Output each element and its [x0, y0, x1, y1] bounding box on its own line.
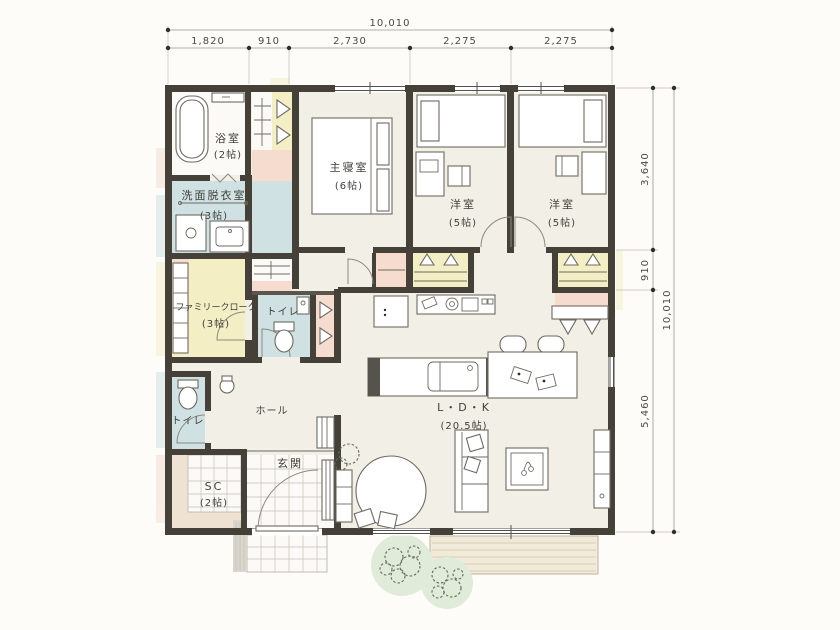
sliding-window-south-1	[373, 529, 430, 536]
dimensions-right: 3,640 910 5,460 10,010	[616, 86, 680, 534]
dining-table	[488, 352, 577, 398]
dim-right-seg-2: 910	[640, 259, 651, 281]
shoe-closet-size: (2帖)	[200, 496, 228, 509]
entrance-fixtures	[322, 460, 334, 520]
desk	[582, 152, 606, 194]
bedroom-center-size: (5帖)	[449, 216, 477, 229]
shoe-cabinet	[322, 460, 334, 520]
toilet-west-label: トイレ	[172, 416, 205, 427]
toilet-west-fixtures	[178, 380, 198, 409]
dim-right-seg-1: 3,640	[640, 152, 651, 186]
washroom-label: 洗面脱衣室	[182, 188, 247, 202]
dimensions-top: 10,010 1,820 910 2,730 2,275 2,275	[166, 18, 614, 84]
walkin-closet-floor	[272, 92, 292, 150]
dim-top-seg-3: 2,730	[333, 36, 367, 47]
sofa-pillow	[466, 434, 483, 451]
master-bedroom-size: (6帖)	[335, 179, 363, 192]
tv-board	[594, 430, 610, 508]
ldk-label: L・D・K	[437, 401, 491, 414]
pillow	[377, 169, 389, 211]
ldk-size: (20.5帖)	[440, 419, 487, 432]
bath-size: (2帖)	[214, 148, 242, 161]
back-counter-stove	[417, 295, 495, 314]
floor-plan-page: 浴室 (2帖) 洗面脱衣室 (3帖) ファミリークローク (3帖) トイレ トイ…	[0, 0, 840, 630]
bedroom-center-label: 洋室	[450, 197, 476, 211]
bedroom-east-size: (5帖)	[548, 216, 576, 229]
pillow	[421, 101, 439, 141]
dining-chair	[500, 336, 526, 353]
chair	[448, 166, 470, 186]
dim-top-seg-1: 1,820	[191, 36, 225, 47]
dim-top-seg-4: 2,275	[443, 36, 477, 47]
refrigerator	[374, 296, 408, 327]
dim-top-seg-2: 910	[258, 36, 280, 47]
dim-right-seg-3: 5,460	[640, 394, 651, 428]
hall-storage	[317, 417, 334, 448]
dining-chair	[538, 336, 564, 353]
dim-top-seg-5: 2,275	[544, 36, 578, 47]
toilet-bowl	[275, 330, 293, 352]
study-counter	[552, 306, 608, 319]
porch	[247, 535, 327, 572]
pillow	[584, 100, 602, 142]
coffee-table	[506, 448, 548, 490]
family-closet-size: (3帖)	[202, 317, 230, 330]
window-ldk-east	[609, 357, 615, 387]
window-bedroom-center	[455, 82, 500, 94]
bath-label: 浴室	[215, 131, 241, 145]
floor-cushion	[378, 511, 398, 528]
window-bedroom-east	[518, 82, 564, 94]
bedroom-east-label: 洋室	[549, 197, 575, 211]
dim-right-total: 10,010	[662, 290, 673, 331]
hall-label: ホール	[256, 405, 289, 417]
window-master	[335, 82, 405, 94]
dim-top-total: 10,010	[370, 18, 411, 29]
chair	[556, 156, 578, 176]
toilet-bowl	[179, 387, 197, 409]
washroom-size: (3帖)	[200, 209, 228, 222]
side-cabinet	[336, 470, 352, 522]
entrance-label: 玄関	[277, 456, 303, 470]
toilet-center-label: トイレ	[267, 307, 300, 318]
shoe-closet-label: SC	[205, 480, 224, 493]
family-closet-label: ファミリークローク	[175, 302, 256, 313]
master-bedroom-label: 主寝室	[330, 160, 369, 174]
desk	[416, 152, 444, 196]
pillow	[377, 123, 389, 165]
floor-plan-canvas: 浴室 (2帖) 洗面脱衣室 (3帖) ファミリークローク (3帖) トイレ トイ…	[0, 0, 840, 630]
